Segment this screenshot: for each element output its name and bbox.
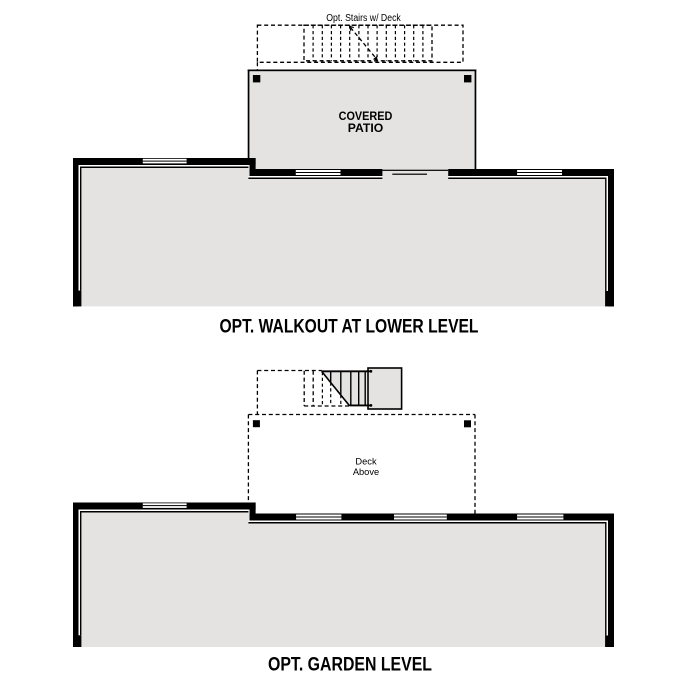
svg-text:Deck: Deck [355,456,377,466]
svg-text:Above: Above [353,467,379,477]
svg-text:OPT. GARDEN LEVEL: OPT. GARDEN LEVEL [268,653,432,675]
svg-text:PATIO: PATIO [348,121,383,135]
svg-text:OPT. WALKOUT AT LOWER LEVEL: OPT. WALKOUT AT LOWER LEVEL [220,316,479,338]
svg-text:Opt. Stairs w/ Deck: Opt. Stairs w/ Deck [326,13,401,24]
